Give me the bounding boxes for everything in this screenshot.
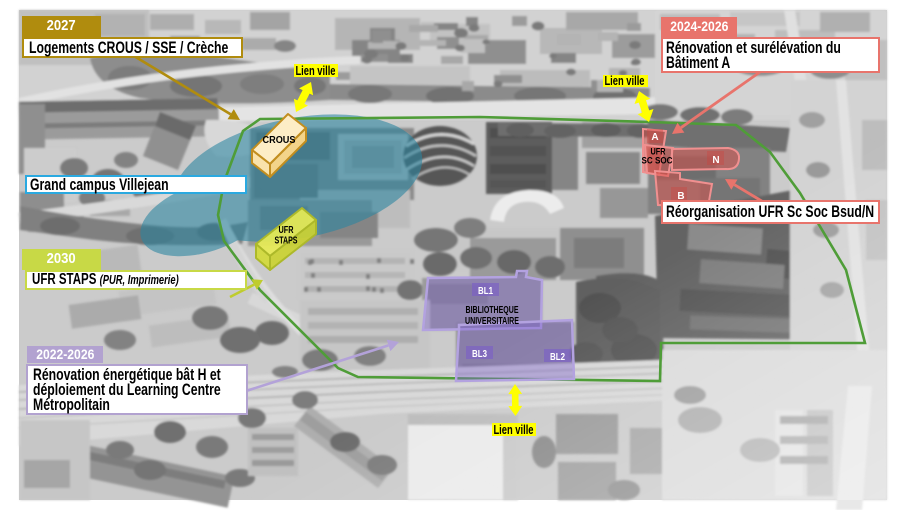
svg-text:N: N [712, 155, 719, 166]
svg-text:UFR: UFR [279, 225, 295, 236]
svg-text:BL1: BL1 [478, 286, 493, 297]
svg-text:A: A [651, 132, 658, 143]
svg-text:CROUS: CROUS [263, 134, 296, 146]
svg-text:UNIVERSITAIRE: UNIVERSITAIRE [465, 316, 519, 327]
svg-text:SC SOC: SC SOC [642, 156, 673, 166]
svg-text:BIBLIOTHEQUE: BIBLIOTHEQUE [466, 305, 519, 316]
svg-text:STAPS: STAPS [275, 236, 298, 247]
svg-text:BL2: BL2 [550, 352, 565, 363]
svg-text:BL3: BL3 [472, 349, 487, 360]
